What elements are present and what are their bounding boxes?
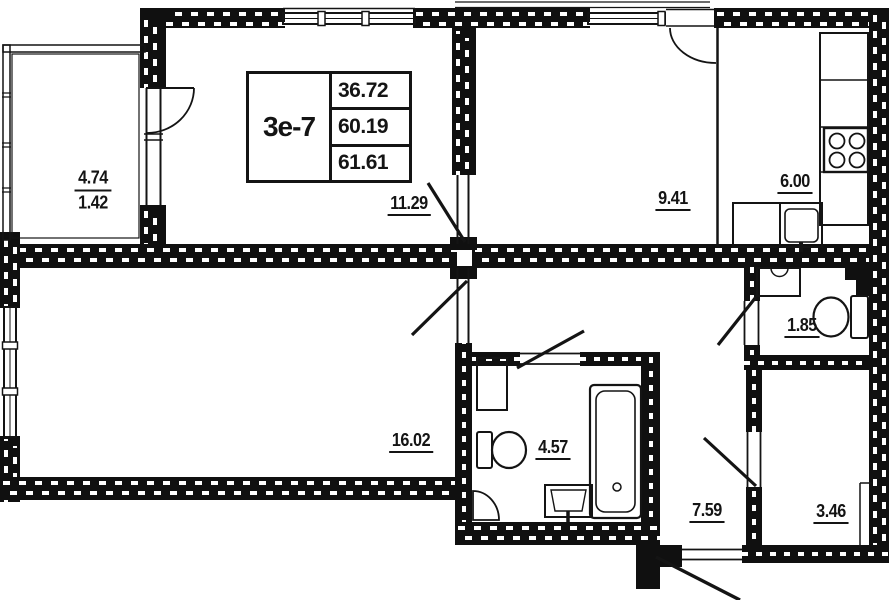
room-label-wc: 1.85 (784, 316, 819, 338)
stove-icon (824, 128, 868, 172)
storage-wall-detail (860, 483, 872, 548)
floor-plan: 3е-7 36.72 60.19 61.61 4.74 1.42 11.29 9… (0, 0, 891, 600)
total-area-value: 60.19 (332, 107, 409, 143)
wc-toilet-icon (814, 296, 869, 338)
unit-number: 3е-7 (249, 74, 329, 180)
kitchen-counter-icon (733, 203, 780, 247)
bathroom-corner-icon (473, 491, 499, 520)
living-area-value: 36.72 (332, 74, 409, 107)
bathroom-sink-icon (545, 485, 592, 522)
title-block: 3е-7 36.72 60.19 61.61 (246, 71, 412, 183)
balcony-door-icon (666, 10, 716, 64)
balcony-area-reduced: 1.42 (75, 192, 112, 212)
room-label-balcony: 4.74 1.42 (75, 169, 112, 212)
total-area-with-summer-value: 61.61 (332, 144, 409, 180)
kitchen-sink-icon (780, 203, 822, 252)
balcony-block-door-icon (144, 88, 194, 205)
window-icon (283, 9, 415, 26)
room-label-hallway: 7.59 (689, 501, 724, 523)
wc-sink-icon (757, 268, 800, 296)
balcony-area-full: 4.74 (75, 169, 112, 192)
room-label-kitchen: 6.00 (777, 172, 812, 194)
bathroom-cabinet-icon (477, 358, 507, 410)
entry-door-slash (656, 557, 740, 600)
room-label-living: 16.02 (389, 431, 433, 453)
bathtub-icon (590, 385, 641, 518)
window-icon (3, 307, 18, 437)
loggia-outline (455, 2, 710, 8)
room-label-room: 9.41 (655, 189, 690, 211)
room-label-storage: 3.46 (813, 502, 848, 524)
junction-opening-tick (459, 252, 467, 264)
plan-linework (0, 0, 891, 600)
window-icon (588, 12, 665, 26)
balcony-glazing (2, 45, 145, 240)
room-label-bedroom: 11.29 (388, 194, 431, 216)
opening-slash (412, 183, 756, 486)
room-label-bathroom: 4.57 (535, 438, 570, 460)
bathroom-toilet-icon (477, 432, 526, 468)
